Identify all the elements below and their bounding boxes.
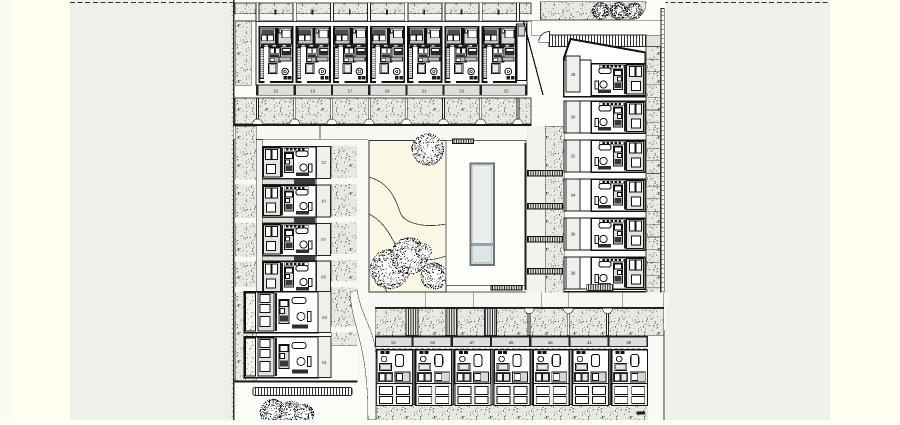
svg-text:15: 15 bbox=[310, 89, 315, 94]
svg-text:23: 23 bbox=[459, 89, 464, 94]
svg-text:21: 21 bbox=[422, 89, 427, 94]
svg-text:12: 12 bbox=[321, 160, 326, 165]
svg-text:19: 19 bbox=[385, 89, 390, 94]
svg-text:39: 39 bbox=[626, 340, 631, 345]
svg-text:28: 28 bbox=[571, 72, 576, 77]
svg-text:07: 07 bbox=[321, 237, 326, 242]
svg-text:30: 30 bbox=[571, 115, 576, 120]
svg-text:01: 01 bbox=[322, 360, 327, 365]
svg-text:45: 45 bbox=[509, 340, 514, 345]
svg-text:34: 34 bbox=[571, 193, 576, 198]
svg-text:25: 25 bbox=[504, 89, 509, 94]
svg-text:36: 36 bbox=[571, 232, 576, 237]
svg-text:38: 38 bbox=[571, 271, 576, 276]
svg-text:41: 41 bbox=[587, 340, 592, 345]
svg-text:10: 10 bbox=[321, 199, 326, 204]
svg-text:03: 03 bbox=[322, 315, 327, 320]
svg-text:50: 50 bbox=[430, 340, 435, 345]
svg-text:17: 17 bbox=[348, 89, 353, 94]
svg-text:32: 32 bbox=[571, 154, 576, 159]
svg-text:47: 47 bbox=[470, 340, 475, 345]
svg-text:05: 05 bbox=[321, 275, 326, 280]
svg-text:43: 43 bbox=[548, 340, 553, 345]
svg-text:52: 52 bbox=[391, 340, 396, 345]
svg-text:13: 13 bbox=[273, 89, 278, 94]
